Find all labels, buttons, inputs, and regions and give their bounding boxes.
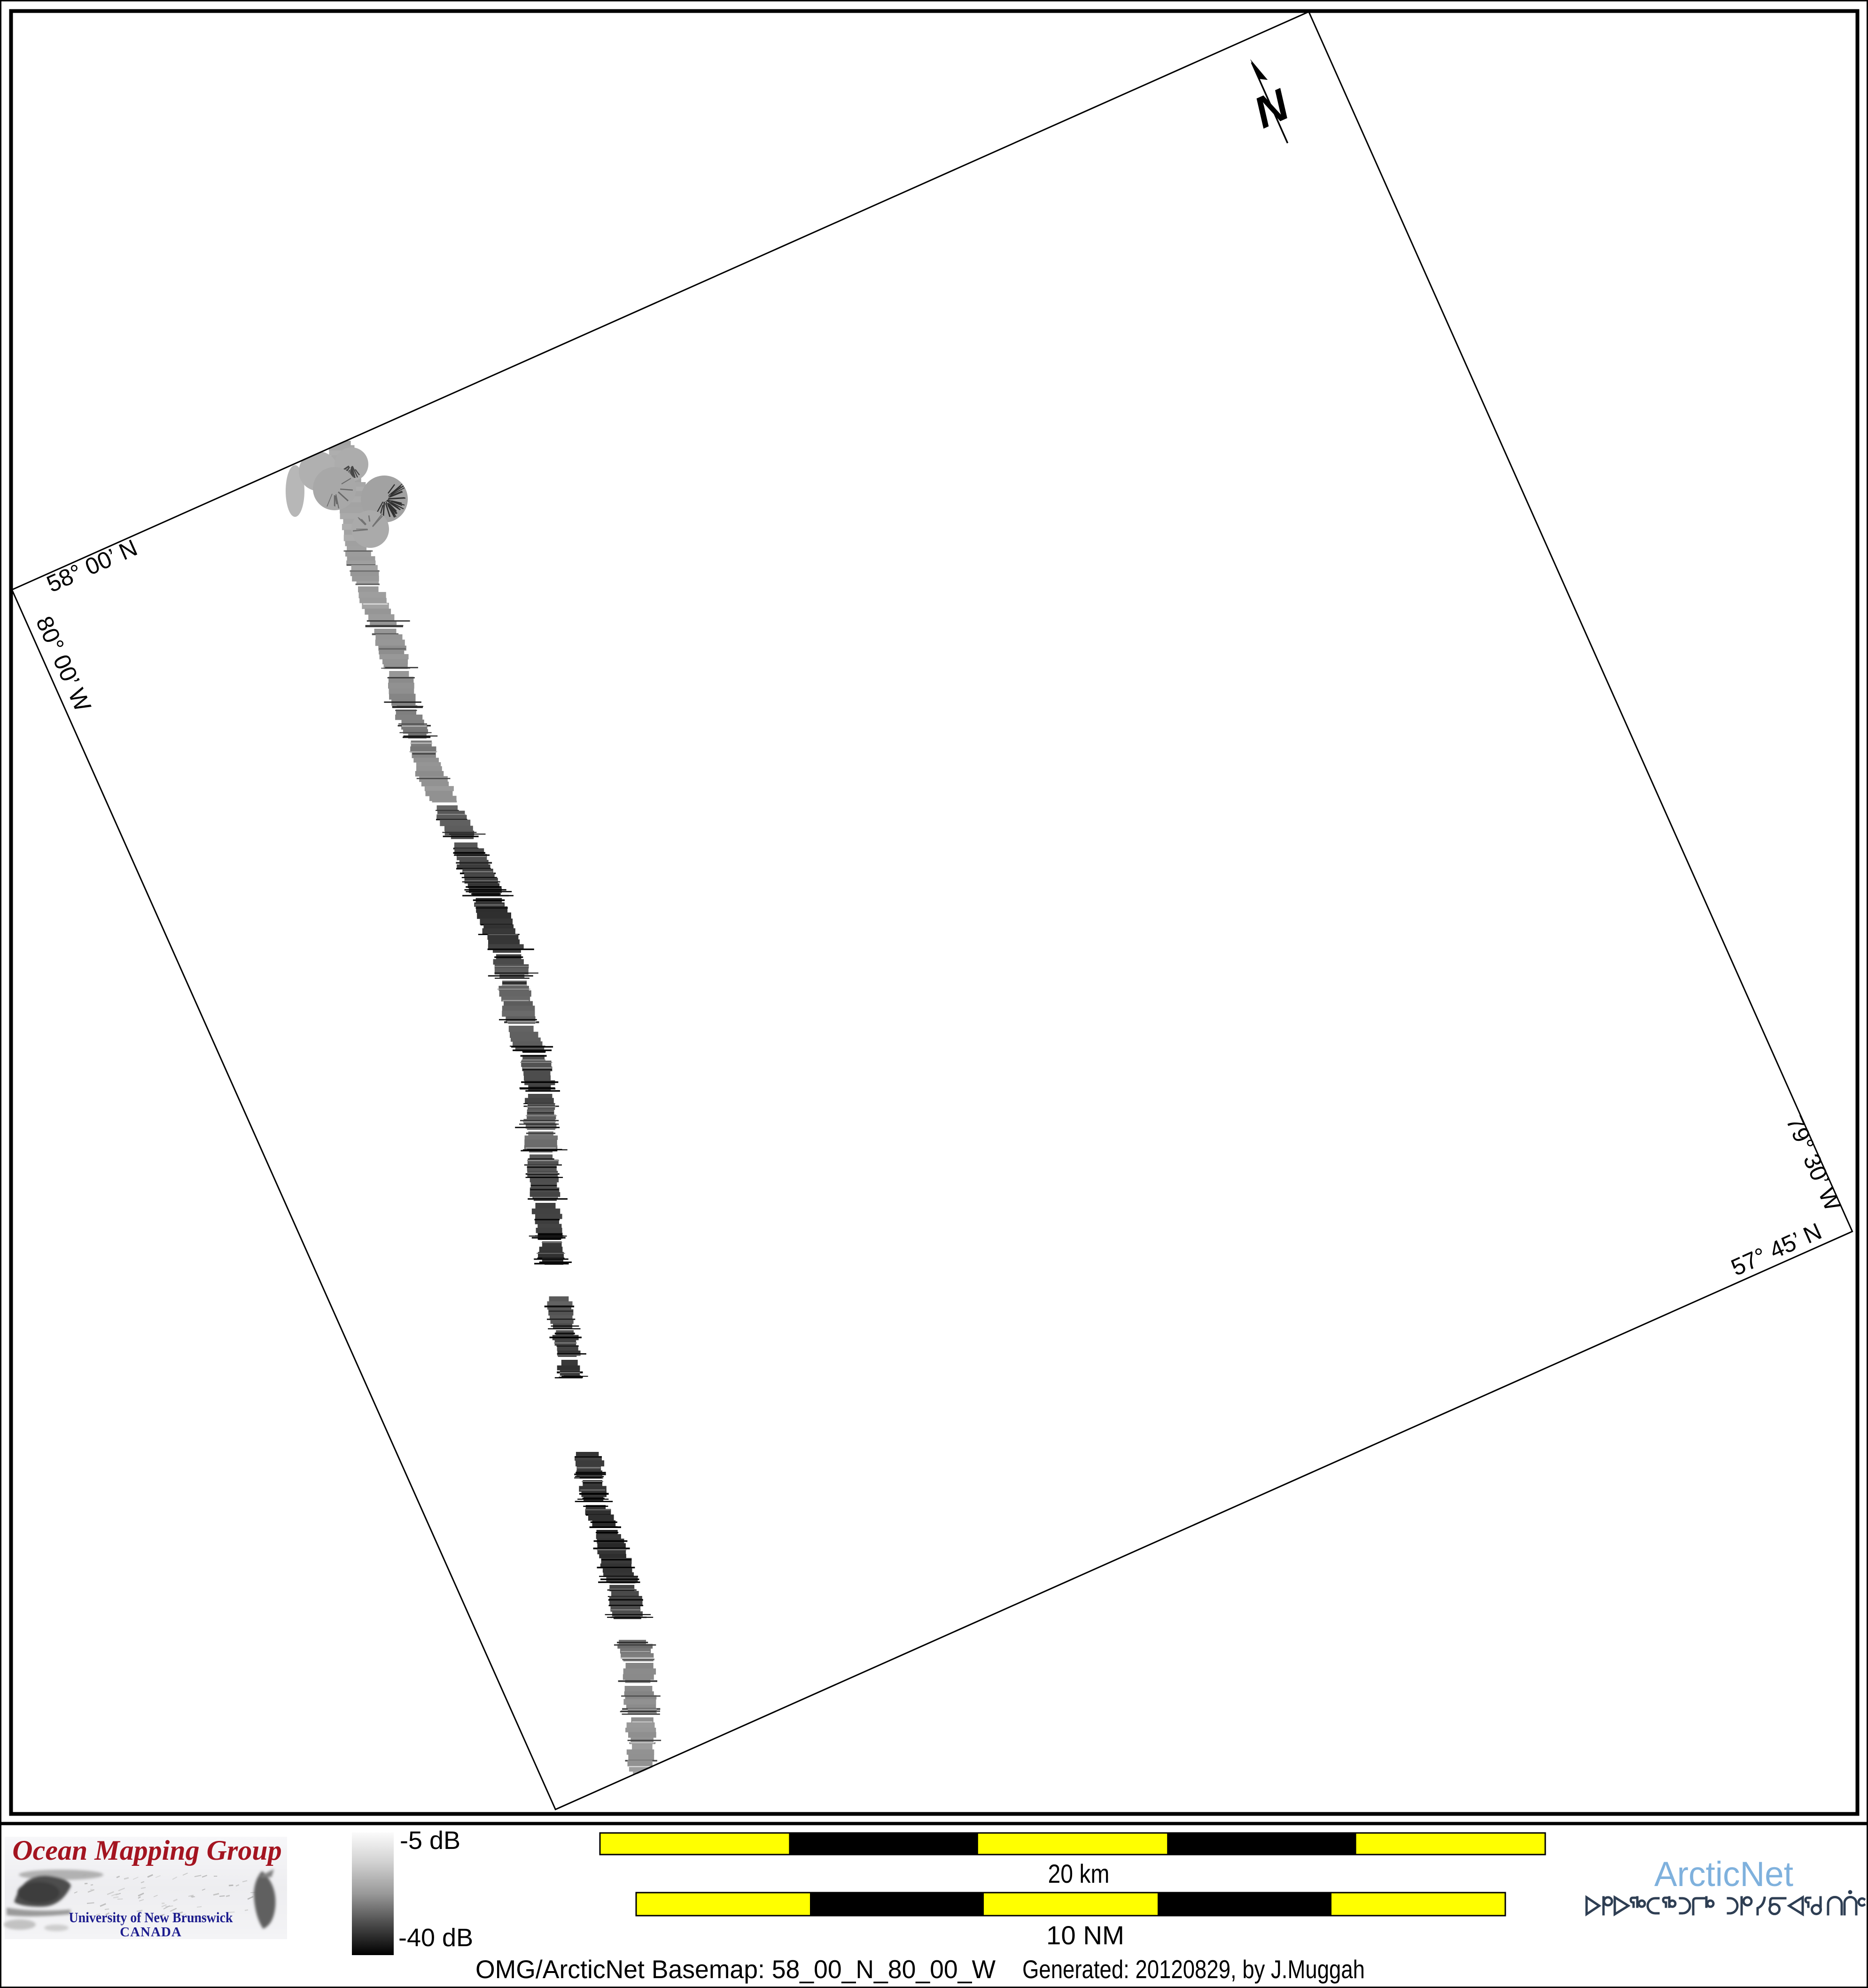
svg-text:University of New Brunswick: University of New Brunswick: [69, 1909, 233, 1926]
svg-text:-5 dB: -5 dB: [400, 1826, 460, 1855]
svg-text:CANADA: CANADA: [120, 1925, 182, 1940]
svg-text:Generated: 20120829, by J.Mugg: Generated: 20120829, by J.Muggah: [1022, 1955, 1365, 1984]
svg-text:-40 dB: -40 dB: [398, 1924, 473, 1952]
svg-text:10 NM: 10 NM: [1046, 1920, 1124, 1950]
svg-text:20 km: 20 km: [1048, 1859, 1110, 1888]
svg-text:OMG/ArcticNet Basemap: 58_00_N: OMG/ArcticNet Basemap: 58_00_N_80_00_W: [475, 1955, 996, 1984]
svg-text:ArcticNet: ArcticNet: [1654, 1855, 1793, 1894]
svg-text:Ocean Mapping Group: Ocean Mapping Group: [12, 1835, 281, 1866]
